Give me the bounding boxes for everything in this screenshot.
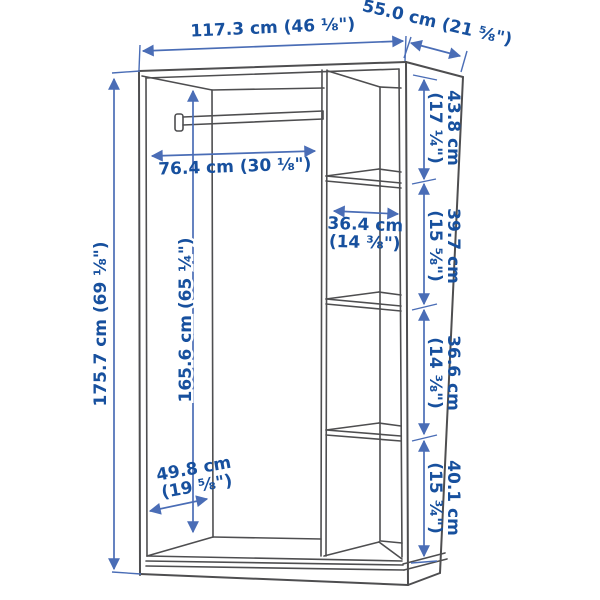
ceiling-back-edge-right	[380, 87, 401, 88]
dimension-line	[150, 499, 207, 511]
inner-bottom-edge	[147, 556, 402, 561]
svg-text:(14 ⅜"): (14 ⅜")	[425, 337, 445, 409]
extension-tick	[112, 71, 140, 73]
shelf-left-edge	[326, 292, 379, 299]
dimension-shelf-width: 36.4 cm (14 ⅜")	[326, 211, 403, 254]
inner-right-edge	[399, 69, 402, 557]
svg-text:40.1 cm: 40.1 cm	[443, 460, 463, 536]
svg-text:(14 ⅜"): (14 ⅜")	[329, 232, 401, 254]
dimension-line	[143, 41, 403, 51]
wardrobe-dimension-diagram: 117.3 cm (46 ⅛") 55.0 cm (21 ⅝") 175.7 c…	[0, 0, 600, 600]
divider-bottom-edge	[324, 542, 379, 556]
shelf-back-edge	[379, 169, 401, 172]
floor-back-edge-left	[213, 537, 321, 539]
svg-text:43.8 cm: 43.8 cm	[443, 90, 463, 166]
shelf-back-edge	[379, 423, 401, 426]
bottom-front-edge	[140, 574, 408, 585]
divider-top-edge	[328, 71, 380, 87]
rail-end-cap	[175, 114, 183, 131]
rail-width-label: 76.4 cm (30 ⅛")	[158, 154, 312, 179]
divider-front-edge-b	[326, 70, 327, 556]
shelf-left-edge	[326, 423, 379, 430]
shelf-1	[326, 169, 401, 188]
interior-depth-label: 49.8 cm (19 ⅝")	[155, 453, 236, 504]
overall-width-label: 117.3 cm (46 ⅛")	[190, 14, 356, 41]
right-wall-bottom-edge	[379, 542, 402, 559]
section-third-label: 36.6 cm (14 ⅜")	[425, 335, 463, 411]
dimension-interior-depth: 49.8 cm (19 ⅝")	[150, 453, 236, 511]
extension-tick	[405, 36, 406, 61]
ceiling-back-edge-left	[212, 88, 324, 90]
svg-text:36.6 cm: 36.6 cm	[443, 335, 463, 411]
svg-text:39.7 cm: 39.7 cm	[443, 208, 463, 284]
right-front-edge	[406, 62, 408, 585]
bottom-side-edge	[408, 573, 440, 585]
dimension-section-stack: 43.8 cm (17 ¼") 39.7 cm (15 ⅝") 36.6 cm …	[411, 75, 463, 563]
rail-top-line	[183, 111, 323, 117]
clothes-rail	[175, 111, 323, 131]
svg-text:(17 ¼"): (17 ¼")	[425, 92, 445, 164]
section-top-label: 43.8 cm (17 ¼")	[425, 90, 463, 166]
dimension-overall-depth: 55.0 cm (21 ⅝")	[360, 0, 514, 72]
shelf-3	[326, 423, 401, 441]
section-tick	[412, 179, 436, 184]
svg-text:(15 ⅝"): (15 ⅝")	[425, 210, 445, 282]
inner-left-edge	[146, 78, 147, 556]
plinth-top-line	[146, 561, 403, 565]
dimension-overall-width: 117.3 cm (46 ⅛")	[139, 14, 406, 70]
section-bottom-label: 40.1 cm (15 ¾")	[425, 460, 463, 536]
dimension-rail-width: 76.4 cm (30 ⅛")	[152, 151, 315, 180]
extension-tick	[461, 51, 467, 72]
section-tick	[412, 304, 437, 310]
extension-tick	[139, 45, 140, 70]
shelf-back-edge	[379, 292, 401, 295]
divider-panel	[321, 70, 380, 556]
plinth-mid-line	[146, 566, 404, 570]
section-tick	[412, 435, 437, 441]
section-tick	[413, 75, 437, 80]
shelf-left-edge	[326, 169, 379, 176]
shelf-width-label: 36.4 cm (14 ⅜")	[326, 214, 403, 255]
dimension-annotations: 117.3 cm (46 ⅛") 55.0 cm (21 ⅝") 175.7 c…	[91, 0, 514, 574]
left-wall-top-edge	[142, 76, 212, 90]
dimension-overall-height: 175.7 cm (69 ⅛")	[91, 71, 141, 574]
dimension-line	[411, 43, 460, 56]
overall-height-label: 175.7 cm (69 ⅛")	[91, 242, 111, 407]
left-wall-bottom-edge	[147, 537, 213, 556]
extension-tick	[112, 572, 141, 574]
divider-front-edge-a	[321, 70, 322, 556]
shelf-2	[326, 292, 401, 311]
rail-bottom-line	[183, 119, 323, 125]
floor-back-edge-right	[381, 541, 402, 543]
interior-height-label: 165.6 cm (65 ¼")	[176, 238, 196, 403]
svg-text:(15 ¾"): (15 ¾")	[425, 462, 445, 534]
section-second-label: 39.7 cm (15 ⅝")	[425, 208, 463, 284]
left-front-edge	[139, 71, 140, 575]
